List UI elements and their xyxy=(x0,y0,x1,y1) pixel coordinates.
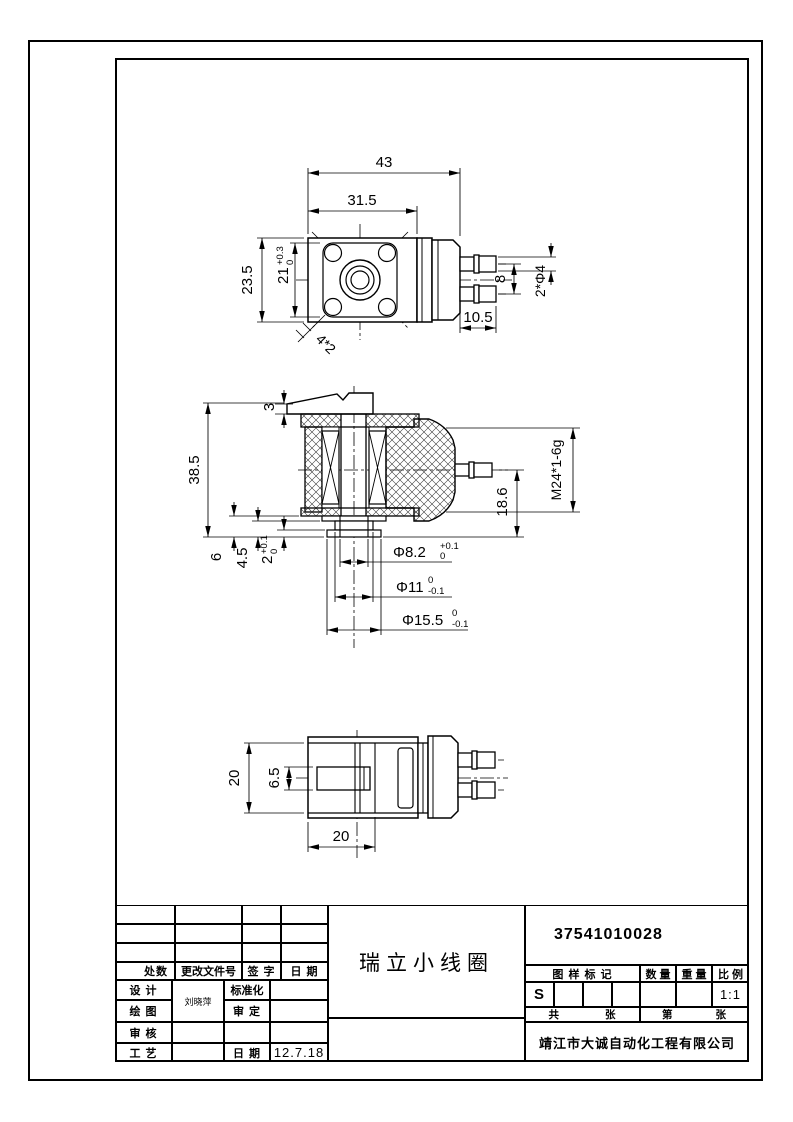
mark-header: 图 样 标 记 xyxy=(525,965,640,982)
part-number: 37541010028 xyxy=(525,905,749,965)
dim-38-5: 38.5 xyxy=(186,455,203,484)
design-label: 设 计 xyxy=(115,980,172,1000)
shell-left-wall xyxy=(305,427,322,512)
section-view: 3 38.5 6 4.5 2 +0.1 0 18.6 M24*1-6g Φ8.2… xyxy=(186,386,580,648)
pin xyxy=(458,753,472,767)
dim-flange: Φ15.5 xyxy=(402,612,443,629)
date-label: 日 期 xyxy=(224,1043,270,1062)
changes-header: 处数 xyxy=(115,962,175,980)
empty-cell xyxy=(270,1022,328,1043)
check-label: 审 核 xyxy=(115,1022,172,1043)
cap xyxy=(432,240,460,320)
pin xyxy=(458,783,472,797)
threaded-body xyxy=(386,419,455,521)
rev-cell xyxy=(242,924,281,943)
standardize-label: 标准化 xyxy=(224,980,270,1000)
empty-cell xyxy=(270,1000,328,1022)
pin xyxy=(460,287,474,301)
sheet-word: 张 xyxy=(605,1007,617,1022)
empty-cell xyxy=(172,1043,224,1062)
approve-label: 审 定 xyxy=(224,1000,270,1022)
dim-mid-tol-up: 0 xyxy=(428,575,433,586)
sheet-no-label: 第 xyxy=(662,1007,674,1022)
dim-flange-tol-up: 0 xyxy=(452,608,457,619)
rev-cell xyxy=(175,943,242,962)
empty-cell xyxy=(328,1018,525,1062)
dim-2xd4: 2*Φ4 xyxy=(532,265,548,297)
qty-header: 数 量 xyxy=(640,965,676,982)
dim-20-h: 20 xyxy=(333,828,350,845)
bottom-view: 20 6.5 20 xyxy=(226,730,508,858)
weight-value xyxy=(676,982,712,1007)
signature-header: 签 字 xyxy=(242,962,281,980)
rev-cell xyxy=(281,924,328,943)
rev-cell xyxy=(175,924,242,943)
dim-31-5: 31.5 xyxy=(347,192,376,209)
mark-value: S xyxy=(525,982,554,1007)
pin xyxy=(455,464,469,476)
dim-10-5: 10.5 xyxy=(463,309,492,326)
rev-cell xyxy=(115,924,175,943)
scale-header: 比 例 xyxy=(712,965,749,982)
svg-text:21: 21 xyxy=(275,267,292,284)
rev-cell xyxy=(242,943,281,962)
date-header: 日 期 xyxy=(281,962,328,980)
designer-name: 刘晓萍 xyxy=(172,980,224,1022)
top-view: 43 31.5 23.5 21 +0.3 0 8 10.5 2*Φ4 4*2 xyxy=(239,154,556,357)
rev-cell xyxy=(242,905,281,924)
dim-2: 2 +0.1 0 xyxy=(259,535,280,564)
date-value: 12.7.18 xyxy=(270,1043,328,1062)
svg-text:2: 2 xyxy=(259,556,276,564)
dim-4x2: 4*2 xyxy=(313,331,339,357)
title-block: 处数 更改文件号 签 字 日 期 设 计 绘 图 审 核 工 艺 刘晓萍 标准化… xyxy=(115,905,749,1062)
drawing-canvas: 43 31.5 23.5 21 +0.3 0 8 10.5 2*Φ4 4*2 xyxy=(0,0,793,900)
dim-6: 6 xyxy=(208,553,225,561)
mark-cell xyxy=(554,982,583,1007)
draft-label: 绘 图 xyxy=(115,1000,172,1022)
svg-text:0: 0 xyxy=(285,260,296,265)
dim-8: 8 xyxy=(492,275,509,283)
dim-bore-tol-low: 0 xyxy=(440,551,445,562)
doc-no-header: 更改文件号 xyxy=(175,962,242,980)
process-label: 工 艺 xyxy=(115,1043,172,1062)
sheet-no-cell: 第 张 xyxy=(640,1007,749,1022)
dim-20-v: 20 xyxy=(226,770,243,787)
dim-bore: Φ8.2 xyxy=(393,544,426,561)
mark-cell xyxy=(583,982,612,1007)
sheet-total-label: 共 xyxy=(549,1007,561,1022)
rev-cell xyxy=(115,905,175,924)
dim-23-5: 23.5 xyxy=(239,265,256,294)
section-body xyxy=(287,393,492,537)
top-plate xyxy=(287,393,373,414)
dim-mid: Φ11 xyxy=(396,579,424,596)
sheet-total-cell: 共 张 xyxy=(525,1007,640,1022)
dim-4-5: 4.5 xyxy=(234,548,251,569)
dim-21: 21 +0.3 0 xyxy=(275,246,296,284)
empty-cell xyxy=(224,1022,270,1043)
company-name: 靖江市大诚自动化工程有限公司 xyxy=(525,1022,749,1062)
rev-cell xyxy=(281,943,328,962)
dim-mid-tol-low: -0.1 xyxy=(428,586,444,597)
dim-flange-tol-low: -0.1 xyxy=(452,619,468,630)
part-name: 瑞立小线圈 xyxy=(328,905,525,1018)
weight-header: 重 量 xyxy=(676,965,712,982)
rev-cell xyxy=(175,905,242,924)
rev-cell xyxy=(281,905,328,924)
sheet-word: 张 xyxy=(716,1007,728,1022)
mark-cell xyxy=(612,982,640,1007)
dim-43: 43 xyxy=(376,154,393,171)
rev-cell xyxy=(115,943,175,962)
dim-3: 3 xyxy=(261,403,278,411)
pin xyxy=(460,257,474,271)
drawing-sheet: 43 31.5 23.5 21 +0.3 0 8 10.5 2*Φ4 4*2 xyxy=(0,0,793,1122)
scale-value: 1:1 xyxy=(712,982,749,1007)
dim-18-6: 18.6 xyxy=(494,487,511,516)
dim-thread: M24*1-6g xyxy=(548,440,564,501)
bottom-outline xyxy=(308,736,495,818)
svg-text:0: 0 xyxy=(269,549,280,554)
dim-6-5: 6.5 xyxy=(266,768,283,789)
qty-value xyxy=(640,982,676,1007)
empty-cell xyxy=(172,1022,224,1043)
empty-cell xyxy=(270,980,328,1000)
